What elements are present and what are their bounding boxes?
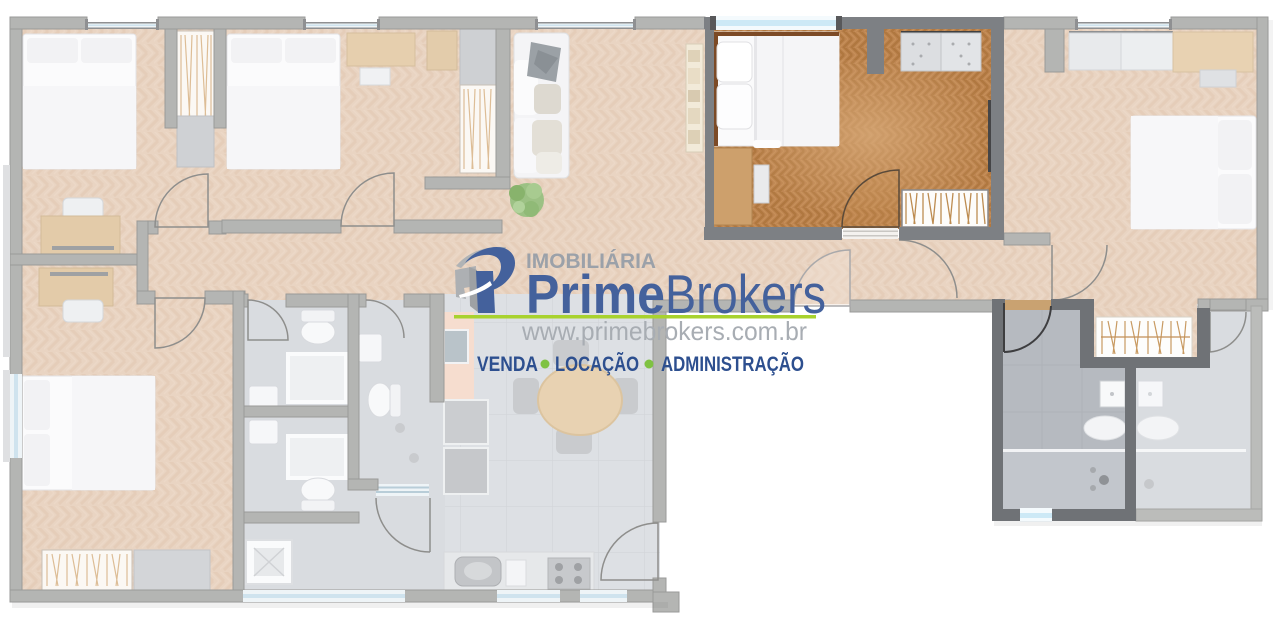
- svg-text:ADMINISTRAÇÃO: ADMINISTRAÇÃO: [661, 353, 804, 376]
- svg-text:www.primebrokers.com.br: www.primebrokers.com.br: [521, 316, 807, 346]
- svg-text:VENDA: VENDA: [477, 353, 538, 376]
- svg-text:LOCAÇÃO: LOCAÇÃO: [555, 353, 639, 376]
